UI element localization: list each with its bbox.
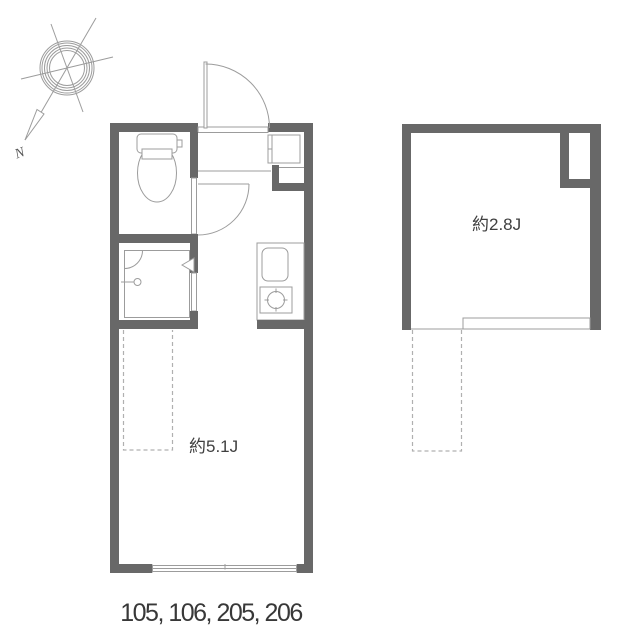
loft-ladder-dashed-outline [413, 330, 462, 451]
compass-north-label: N [12, 145, 27, 163]
toilet-seat-hinge [142, 149, 172, 159]
entrance-sill [198, 127, 268, 133]
shower-door-panel [192, 273, 197, 311]
shower-corner-arc [125, 251, 143, 269]
loft-floor-plan: 約2.8J [402, 124, 601, 451]
toilet-room [110, 132, 198, 243]
floor-plan-drawing: N [0, 0, 623, 640]
unit-numbers-label: 105, 106, 205, 206 [120, 599, 302, 627]
toilet-door-panel [192, 178, 197, 234]
loft-area-label: 約2.8J [472, 215, 521, 234]
main-room-area-label: 約5.1J [189, 437, 238, 456]
main-floor-plan: 約5.1J [110, 62, 313, 573]
interior-door-icon [198, 184, 249, 235]
door-direction-arrow-icon [182, 258, 194, 272]
storage-upper [268, 135, 300, 163]
loft-overhead-dashed-outline [124, 330, 173, 450]
north-arrow-head [25, 110, 44, 141]
loft-railing [463, 318, 590, 329]
kitchen-side-wall [257, 320, 313, 329]
interior-door-swing-arc [198, 184, 249, 235]
toilet-icon [137, 134, 182, 202]
floor-plan-page: N [0, 0, 623, 640]
entrance-door-leaf [204, 62, 207, 128]
sliding-window-icon [152, 564, 297, 573]
toilet-flush-button [177, 140, 182, 147]
entrance-door-swing-arc [206, 64, 270, 128]
compass-rose-icon: N [12, 18, 113, 163]
entrance-door-icon [198, 62, 270, 133]
loft-void-wall-horizontal [560, 179, 590, 188]
kitchen-sink [262, 248, 288, 281]
shower-room [110, 243, 198, 329]
